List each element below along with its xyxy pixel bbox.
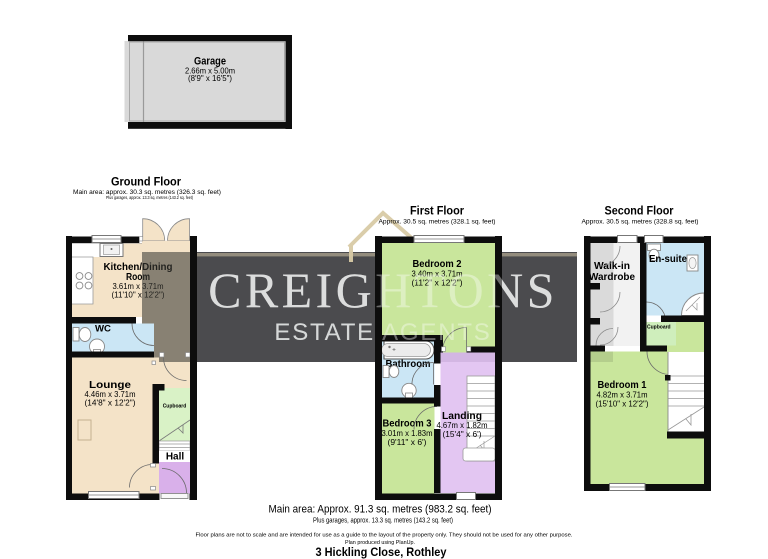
svg-text:Wardrobe: Wardrobe <box>589 272 635 283</box>
svg-text:Ground Floor: Ground Floor <box>111 175 181 189</box>
svg-text:Main area: Approx. 91.3 sq. me: Main area: Approx. 91.3 sq. metres (983.… <box>269 504 492 516</box>
svg-text:Cupboard: Cupboard <box>647 325 671 331</box>
svg-text:WC: WC <box>95 324 111 335</box>
svg-text:First Floor: First Floor <box>410 206 464 218</box>
svg-text:(14'8" x 12'2"): (14'8" x 12'2") <box>85 398 136 408</box>
svg-text:(9'11" x 6'): (9'11" x 6') <box>388 437 427 447</box>
svg-text:En-suite: En-suite <box>649 254 687 265</box>
svg-text:Plus garages, approx. 13.3 sq.: Plus garages, approx. 13.3 sq. metres (1… <box>313 518 453 525</box>
svg-text:Cupboard: Cupboard <box>163 404 187 410</box>
svg-text:(15'10" x 12'2"): (15'10" x 12'2") <box>596 399 649 409</box>
svg-text:(15'4" x 6'): (15'4" x 6') <box>443 429 482 439</box>
svg-text:Floor plans are not to scale a: Floor plans are not to scale and are int… <box>196 533 573 539</box>
svg-text:Walk-in: Walk-in <box>594 261 630 272</box>
svg-text:Approx. 30.5 sq. metres (328.1: Approx. 30.5 sq. metres (328.1 sq. feet) <box>379 219 496 226</box>
svg-text:Second Floor: Second Floor <box>605 206 674 218</box>
svg-text:Approx. 30.5 sq. metres (328.8: Approx. 30.5 sq. metres (328.8 sq. feet) <box>582 219 699 226</box>
svg-text:(8'9" x 16'5"): (8'9" x 16'5") <box>188 73 232 83</box>
svg-text:(11'2" x 12'2"): (11'2" x 12'2") <box>412 278 463 288</box>
svg-text:Plus garages, approx. 13.3 sq.: Plus garages, approx. 13.3 sq. metres (1… <box>106 195 193 200</box>
svg-text:3 Hickling Close, Rothley: 3 Hickling Close, Rothley <box>316 545 447 559</box>
svg-text:Hall: Hall <box>166 452 185 463</box>
